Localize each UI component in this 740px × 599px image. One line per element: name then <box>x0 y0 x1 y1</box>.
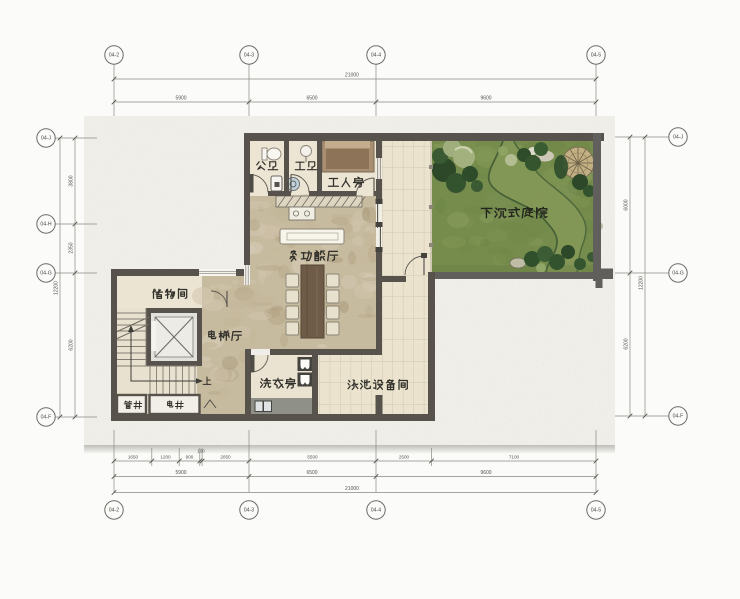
svg-text:04-5: 04-5 <box>591 53 601 59</box>
svg-text:04-2: 04-2 <box>109 508 119 514</box>
svg-text:12200: 12200 <box>54 281 60 295</box>
svg-text:04-3: 04-3 <box>244 53 254 59</box>
svg-text:3800: 3800 <box>69 175 75 186</box>
svg-text:21000: 21000 <box>345 73 359 79</box>
svg-text:6000: 6000 <box>624 199 630 210</box>
svg-text:04-G: 04-G <box>40 271 52 277</box>
svg-text:04-5: 04-5 <box>591 508 601 514</box>
svg-text:04-4: 04-4 <box>371 53 381 59</box>
svg-text:5900: 5900 <box>175 470 186 476</box>
svg-text:1650: 1650 <box>128 455 139 460</box>
svg-text:2350: 2350 <box>69 242 75 253</box>
svg-text:5500: 5500 <box>307 455 318 460</box>
svg-text:2500: 2500 <box>399 455 410 460</box>
svg-text:1200: 1200 <box>160 455 171 460</box>
svg-text:900: 900 <box>186 455 194 460</box>
svg-text:100: 100 <box>197 449 205 454</box>
svg-text:04-4: 04-4 <box>371 508 381 514</box>
svg-text:2050: 2050 <box>220 455 231 460</box>
svg-text:9600: 9600 <box>480 96 491 102</box>
svg-text:04-H: 04-H <box>40 222 51 228</box>
svg-text:04-F: 04-F <box>673 414 684 420</box>
svg-text:04-J: 04-J <box>41 136 51 142</box>
svg-text:04-G: 04-G <box>672 271 684 277</box>
svg-text:6500: 6500 <box>306 470 317 476</box>
svg-text:21000: 21000 <box>345 486 359 492</box>
svg-text:04-J: 04-J <box>673 135 683 141</box>
svg-text:12200: 12200 <box>639 276 645 290</box>
svg-text:04-2: 04-2 <box>109 53 119 59</box>
svg-text:6200: 6200 <box>69 339 75 350</box>
svg-text:5900: 5900 <box>175 96 186 102</box>
svg-text:04-3: 04-3 <box>244 508 254 514</box>
svg-text:9600: 9600 <box>480 470 491 476</box>
svg-text:6200: 6200 <box>624 338 630 349</box>
svg-text:04-F: 04-F <box>41 415 52 421</box>
svg-text:7100: 7100 <box>509 455 520 460</box>
svg-text:6500: 6500 <box>306 96 317 102</box>
